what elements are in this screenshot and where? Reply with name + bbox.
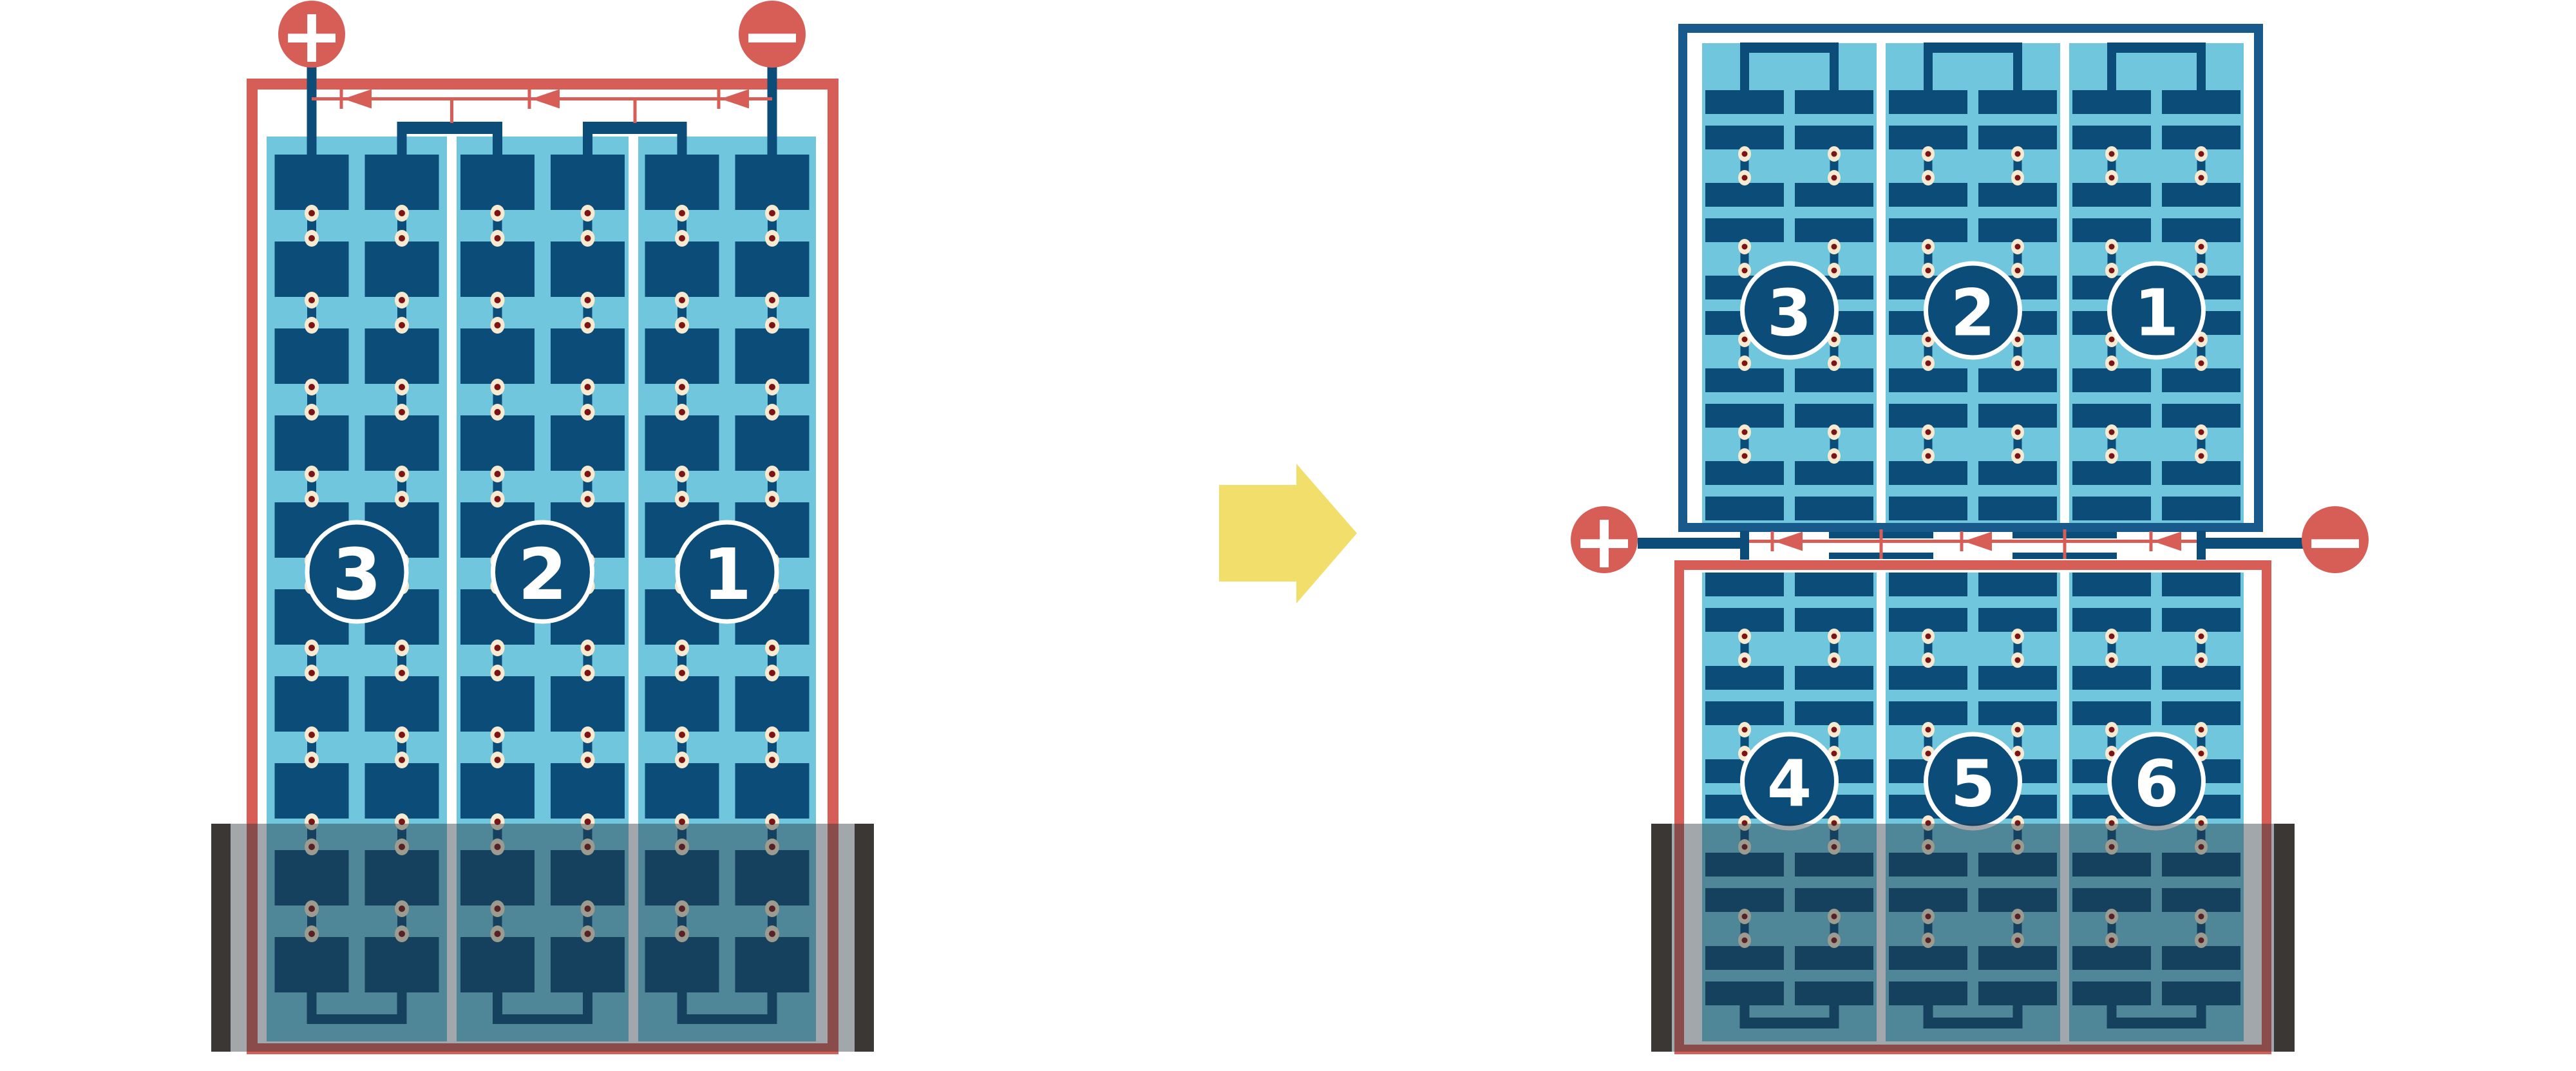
solar-cell — [1705, 701, 1784, 725]
solar-cell — [2162, 701, 2240, 725]
solder-dot-icon — [1742, 634, 1748, 640]
solder-dot-icon — [2109, 175, 2115, 181]
solar-cell — [2162, 126, 2240, 149]
diode-triangle — [2153, 532, 2181, 551]
solar-cell — [1889, 404, 1967, 428]
solder-dot-icon — [2199, 244, 2204, 250]
cap-jumper-bar — [1740, 43, 1839, 53]
solder-dot-icon — [1832, 268, 1837, 274]
solder-dot-icon — [308, 210, 315, 216]
solar-cell — [365, 328, 439, 384]
solder-dot-icon — [2109, 361, 2115, 366]
solar-cell — [1705, 90, 1784, 114]
string-number-badge: 2 — [1926, 263, 2020, 357]
solder-dot-icon — [2109, 658, 2115, 663]
solder-dot-icon — [2199, 151, 2204, 157]
solder-dot-icon — [308, 645, 315, 651]
solder-dot-icon — [308, 297, 315, 303]
solder-dot-icon — [679, 409, 685, 415]
string-divider — [2060, 43, 2069, 523]
string-number-label: 3 — [1767, 276, 1812, 351]
solar-cell — [2072, 90, 2151, 114]
flood-overlay — [1651, 824, 2295, 1052]
solder-dot-icon — [2199, 634, 2204, 640]
top-panel-stub — [2197, 531, 2206, 560]
solar-cell — [735, 415, 810, 471]
solder-dot-icon — [679, 732, 685, 738]
solder-dot-icon — [2199, 751, 2204, 757]
solder-dot-icon — [308, 670, 315, 676]
solder-dot-icon — [399, 384, 405, 390]
string-number-label: 2 — [1951, 276, 1996, 351]
solder-dot-icon — [308, 496, 315, 502]
diode-cathode-bar — [1771, 531, 1774, 551]
solar-cell — [1978, 573, 2057, 596]
solar-cell — [1795, 666, 1873, 690]
solar-cell — [645, 676, 719, 732]
solder-dot-icon — [769, 235, 775, 242]
solar-cell — [365, 415, 439, 471]
solar-cell — [2072, 666, 2151, 690]
solder-dot-icon — [399, 322, 405, 328]
solder-dot-icon — [1926, 658, 1931, 663]
solar-cell — [1705, 368, 1784, 392]
bypass-diode-icon — [528, 89, 560, 109]
solder-dot-icon — [495, 297, 501, 303]
flood-overlay — [211, 824, 874, 1052]
solar-cell — [365, 155, 439, 210]
solder-dot-icon — [1742, 175, 1748, 181]
solder-dot-icon — [2199, 658, 2204, 663]
string-number-label: 3 — [332, 533, 382, 616]
solder-dot-icon — [2109, 268, 2115, 274]
solder-dot-icon — [495, 409, 501, 415]
flood-side-bar — [2274, 824, 2295, 1052]
solar-cell — [365, 763, 439, 819]
solar-cell — [1978, 461, 2057, 485]
solder-dot-icon — [2109, 634, 2115, 640]
solar-cell — [645, 155, 719, 210]
solder-dot-icon — [308, 322, 315, 328]
solar-cell — [1978, 404, 2057, 428]
solar-cell — [275, 155, 349, 210]
solder-dot-icon — [1832, 337, 1837, 343]
bypass-diode-icon — [1771, 531, 1803, 551]
solar-cell — [551, 328, 625, 384]
diode-cathode-bar — [717, 89, 721, 109]
solder-dot-icon — [1926, 268, 1931, 274]
solar-cell — [1795, 126, 1873, 149]
solder-dot-icon — [2015, 430, 2021, 435]
solder-dot-icon — [585, 670, 591, 676]
solar-cell — [460, 328, 535, 384]
string-number-badge: 3 — [307, 522, 406, 621]
solder-dot-icon — [399, 496, 405, 502]
solar-cell — [551, 242, 625, 297]
solar-cell — [2072, 461, 2151, 485]
solar-cell — [275, 415, 349, 471]
positive-bus-bar — [1638, 538, 1741, 549]
solder-dot-icon — [2015, 751, 2021, 757]
terminal-sign: − — [2304, 497, 2367, 585]
solder-dot-icon — [1926, 634, 1931, 640]
string-number-badge: 5 — [1926, 734, 2020, 828]
solder-dot-icon — [1832, 727, 1837, 733]
solar-cell — [1705, 497, 1784, 520]
cap-jumper-leg — [1740, 52, 1749, 90]
solar-cell — [735, 763, 810, 819]
solder-dot-icon — [2015, 658, 2021, 663]
solder-dot-icon — [1832, 658, 1837, 663]
positive-terminal: + — [278, 0, 345, 80]
solar-cell — [460, 676, 535, 732]
solder-dot-icon — [2109, 337, 2115, 343]
solar-cell — [2072, 368, 2151, 392]
string-number-badge: 2 — [493, 522, 592, 621]
solar-cell — [460, 763, 535, 819]
string-number-badge: 1 — [677, 522, 777, 621]
flood-side-bar — [855, 824, 874, 1052]
solar-cell — [2162, 183, 2240, 207]
solar-cell — [1795, 404, 1873, 428]
solder-dot-icon — [399, 757, 405, 763]
solder-dot-icon — [679, 210, 685, 216]
solar-cell — [1705, 461, 1784, 485]
solder-dot-icon — [585, 409, 591, 415]
solder-dot-icon — [585, 732, 591, 738]
solder-dot-icon — [2199, 430, 2204, 435]
terminal-sign: + — [280, 0, 344, 80]
solar-cell — [2072, 573, 2151, 596]
solder-dot-icon — [769, 471, 775, 477]
solar-cell — [1889, 573, 1967, 596]
solar-cell — [1795, 183, 1873, 207]
solder-dot-icon — [1926, 453, 1931, 459]
negative-terminal: − — [2302, 497, 2369, 585]
solder-dot-icon — [679, 670, 685, 676]
solder-dot-icon — [2015, 361, 2021, 366]
solder-dot-icon — [1926, 727, 1931, 733]
transform-arrow-icon — [1219, 464, 1357, 603]
solar-cell — [551, 763, 625, 819]
solder-dot-icon — [1926, 751, 1931, 757]
solder-dot-icon — [769, 322, 775, 328]
solder-dot-icon — [2109, 151, 2115, 157]
solder-dot-icon — [585, 645, 591, 651]
string-number-badge: 4 — [1743, 734, 1837, 828]
solar-cell — [1889, 701, 1967, 725]
solar-cell — [1978, 666, 2057, 690]
solar-cell — [1705, 183, 1784, 207]
solder-dot-icon — [2199, 337, 2204, 343]
solder-dot-icon — [495, 757, 501, 763]
solder-dot-icon — [399, 732, 405, 738]
solar-cell — [460, 155, 535, 210]
solder-dot-icon — [1926, 244, 1931, 250]
string-number-badge: 1 — [2110, 263, 2204, 357]
solar-cell — [2162, 497, 2240, 520]
solder-dot-icon — [2109, 751, 2115, 757]
inter-string-jumper-leg — [493, 133, 502, 156]
solder-dot-icon — [2199, 361, 2204, 366]
solder-dot-icon — [495, 235, 501, 242]
solar-cell — [735, 155, 810, 210]
solar-cell — [1705, 608, 1784, 632]
solar-cell — [1889, 666, 1967, 690]
string-number-label: 5 — [1951, 746, 1996, 822]
solar-cell — [1978, 497, 2057, 520]
solder-dot-icon — [769, 496, 775, 502]
inter-string-jumper-bar — [583, 122, 687, 134]
solder-dot-icon — [495, 384, 501, 390]
solder-dot-icon — [1832, 751, 1837, 757]
solder-dot-icon — [308, 384, 315, 390]
solar-cell — [1705, 126, 1784, 149]
solar-cell — [1705, 218, 1784, 242]
solder-dot-icon — [679, 757, 685, 763]
bypass-diode-icon — [340, 89, 372, 109]
solar-cell — [2162, 368, 2240, 392]
right-top-panel: 321 — [1702, 43, 2244, 523]
solder-dot-icon — [585, 297, 591, 303]
solder-dot-icon — [399, 645, 405, 651]
solder-dot-icon — [495, 210, 501, 216]
solder-dot-icon — [769, 645, 775, 651]
solder-dot-icon — [2015, 268, 2021, 274]
flood-side-bar — [1651, 824, 1672, 1052]
solder-dot-icon — [1832, 151, 1837, 157]
solder-dot-icon — [1926, 361, 1931, 366]
solar-cell — [645, 242, 719, 297]
solder-dot-icon — [2109, 453, 2115, 459]
solder-dot-icon — [679, 297, 685, 303]
solder-dot-icon — [2015, 453, 2021, 459]
solder-dot-icon — [769, 732, 775, 738]
solar-cell — [1978, 608, 2057, 632]
solar-cell — [2162, 666, 2240, 690]
solar-cell — [1705, 573, 1784, 596]
string-number-label: 4 — [1767, 746, 1812, 822]
solder-dot-icon — [1742, 268, 1748, 274]
negative-terminal: − — [739, 0, 806, 80]
solar-cell — [275, 242, 349, 297]
solder-dot-icon — [585, 235, 591, 242]
solar-cell — [1978, 368, 2057, 392]
solar-cell — [460, 242, 535, 297]
solar-cell — [1795, 497, 1873, 520]
solder-dot-icon — [679, 471, 685, 477]
solder-dot-icon — [495, 670, 501, 676]
solar-cell — [1795, 368, 1873, 392]
solder-dot-icon — [399, 471, 405, 477]
solar-cell — [1795, 461, 1873, 485]
solder-dot-icon — [679, 496, 685, 502]
solder-dot-icon — [769, 384, 775, 390]
cap-jumper-leg — [1830, 52, 1839, 90]
solder-dot-icon — [399, 409, 405, 415]
solar-cell — [735, 242, 810, 297]
diode-tap-wire — [450, 99, 453, 123]
solar-cell — [2072, 497, 2151, 520]
solder-dot-icon — [495, 471, 501, 477]
solder-dot-icon — [769, 670, 775, 676]
solar-cell — [551, 415, 625, 471]
bypass-diode-icon — [717, 89, 750, 109]
solar-cell — [1889, 126, 1967, 149]
cap-jumper-bar — [1924, 43, 2022, 53]
solder-dot-icon — [308, 409, 315, 415]
solder-dot-icon — [679, 384, 685, 390]
inter-string-jumper-leg — [397, 133, 407, 156]
solder-dot-icon — [308, 235, 315, 242]
solar-cell — [1889, 461, 1967, 485]
solder-dot-icon — [399, 235, 405, 242]
solar-cell — [551, 155, 625, 210]
solder-dot-icon — [1742, 658, 1748, 663]
solar-cell — [1978, 218, 2057, 242]
solder-dot-icon — [2109, 244, 2115, 250]
solder-dot-icon — [2109, 727, 2115, 733]
solar-cell — [2162, 608, 2240, 632]
diode-triangle — [343, 90, 372, 109]
solar-cell — [2072, 126, 2151, 149]
figure-canvas: 321+−321456+− — [0, 0, 2576, 1068]
solar-cell — [1795, 90, 1873, 114]
solder-dot-icon — [585, 757, 591, 763]
string-number-label: 6 — [2134, 746, 2179, 822]
solder-dot-icon — [2015, 634, 2021, 640]
solder-dot-icon — [2015, 337, 2021, 343]
cap-jumper-bar — [2107, 43, 2206, 53]
solder-dot-icon — [585, 384, 591, 390]
solar-cell — [1978, 183, 2057, 207]
negative-bus-bar — [2206, 538, 2303, 549]
solar-cell — [735, 328, 810, 384]
flood-side-bar — [211, 824, 231, 1052]
solar-cell — [2072, 218, 2151, 242]
solder-dot-icon — [2199, 175, 2204, 181]
solar-cell — [1889, 218, 1967, 242]
solder-dot-icon — [308, 732, 315, 738]
diode-triangle — [721, 90, 749, 109]
solar-cell — [551, 676, 625, 732]
solder-dot-icon — [1832, 361, 1837, 366]
diode-tap-wire — [634, 99, 637, 123]
solar-cell — [2162, 90, 2240, 114]
solder-dot-icon — [1926, 175, 1931, 181]
solder-dot-icon — [585, 210, 591, 216]
solder-dot-icon — [1742, 453, 1748, 459]
inter-string-jumper-bar — [397, 122, 503, 134]
solar-cell — [645, 415, 719, 471]
solar-cell — [1978, 701, 2057, 725]
solder-dot-icon — [2109, 430, 2115, 435]
solder-dot-icon — [1832, 634, 1837, 640]
solder-dot-icon — [1742, 361, 1748, 366]
solder-dot-icon — [679, 322, 685, 328]
solder-dot-icon — [679, 235, 685, 242]
solar-cell — [1889, 497, 1967, 520]
solar-cell — [365, 676, 439, 732]
solder-dot-icon — [1742, 430, 1748, 435]
solar-cell — [1795, 608, 1873, 632]
solder-dot-icon — [399, 210, 405, 216]
solar-cell — [1795, 573, 1873, 596]
diode-cathode-bar — [528, 89, 531, 109]
diode-tap-wire — [2063, 529, 2067, 559]
diode-triangle — [531, 90, 560, 109]
solar-cell — [2072, 701, 2151, 725]
solder-dot-icon — [308, 757, 315, 763]
solar-cell — [2072, 608, 2151, 632]
solder-dot-icon — [2199, 727, 2204, 733]
solder-dot-icon — [495, 322, 501, 328]
positive-terminal: + — [1571, 497, 1638, 585]
solder-dot-icon — [1742, 727, 1748, 733]
solder-dot-icon — [2015, 244, 2021, 250]
solder-dot-icon — [1926, 430, 1931, 435]
string-number-label: 1 — [703, 533, 752, 616]
diode-triangle — [1774, 532, 1803, 551]
solder-dot-icon — [1832, 453, 1837, 459]
bypass-diode-icon — [2150, 531, 2182, 551]
inter-string-jumper-leg — [677, 133, 687, 156]
inter-string-jumper-leg — [583, 133, 592, 156]
solar-cell — [1889, 368, 1967, 392]
solar-cell — [1978, 90, 2057, 114]
cap-jumper-leg — [2013, 52, 2022, 90]
solar-cell — [460, 415, 535, 471]
solar-cell — [1978, 126, 2057, 149]
solar-cell — [2162, 573, 2240, 596]
solder-dot-icon — [495, 496, 501, 502]
solar-cell — [2162, 461, 2240, 485]
solar-cell — [645, 328, 719, 384]
solar-cell — [1795, 701, 1873, 725]
diode-cathode-bar — [1960, 531, 1964, 551]
diode-cathode-bar — [340, 89, 343, 109]
solar-cell — [645, 763, 719, 819]
solder-dot-icon — [1742, 151, 1748, 157]
solder-dot-icon — [769, 409, 775, 415]
solder-dot-icon — [2015, 175, 2021, 181]
top-panel-stub — [1740, 531, 1749, 560]
solar-cell — [2072, 183, 2151, 207]
solar-cell — [1889, 608, 1967, 632]
solder-dot-icon — [1832, 430, 1837, 435]
solar-cell — [2072, 404, 2151, 428]
terminal-sign: + — [1573, 497, 1636, 585]
solder-dot-icon — [399, 670, 405, 676]
solar-cell — [1889, 90, 1967, 114]
solder-dot-icon — [399, 297, 405, 303]
cap-jumper-leg — [2107, 52, 2116, 90]
solder-dot-icon — [1742, 244, 1748, 250]
solder-dot-icon — [2015, 727, 2021, 733]
solder-dot-icon — [2199, 453, 2204, 459]
solar-cell — [735, 676, 810, 732]
solder-dot-icon — [585, 496, 591, 502]
string-number-label: 2 — [518, 533, 567, 616]
left-module: 321+− — [211, 0, 874, 1052]
solder-dot-icon — [769, 210, 775, 216]
diode-cathode-bar — [2150, 531, 2153, 551]
solder-dot-icon — [2015, 151, 2021, 157]
solar-cell — [365, 242, 439, 297]
solar-cell — [275, 676, 349, 732]
string-divider — [1877, 43, 1886, 523]
solder-dot-icon — [769, 757, 775, 763]
